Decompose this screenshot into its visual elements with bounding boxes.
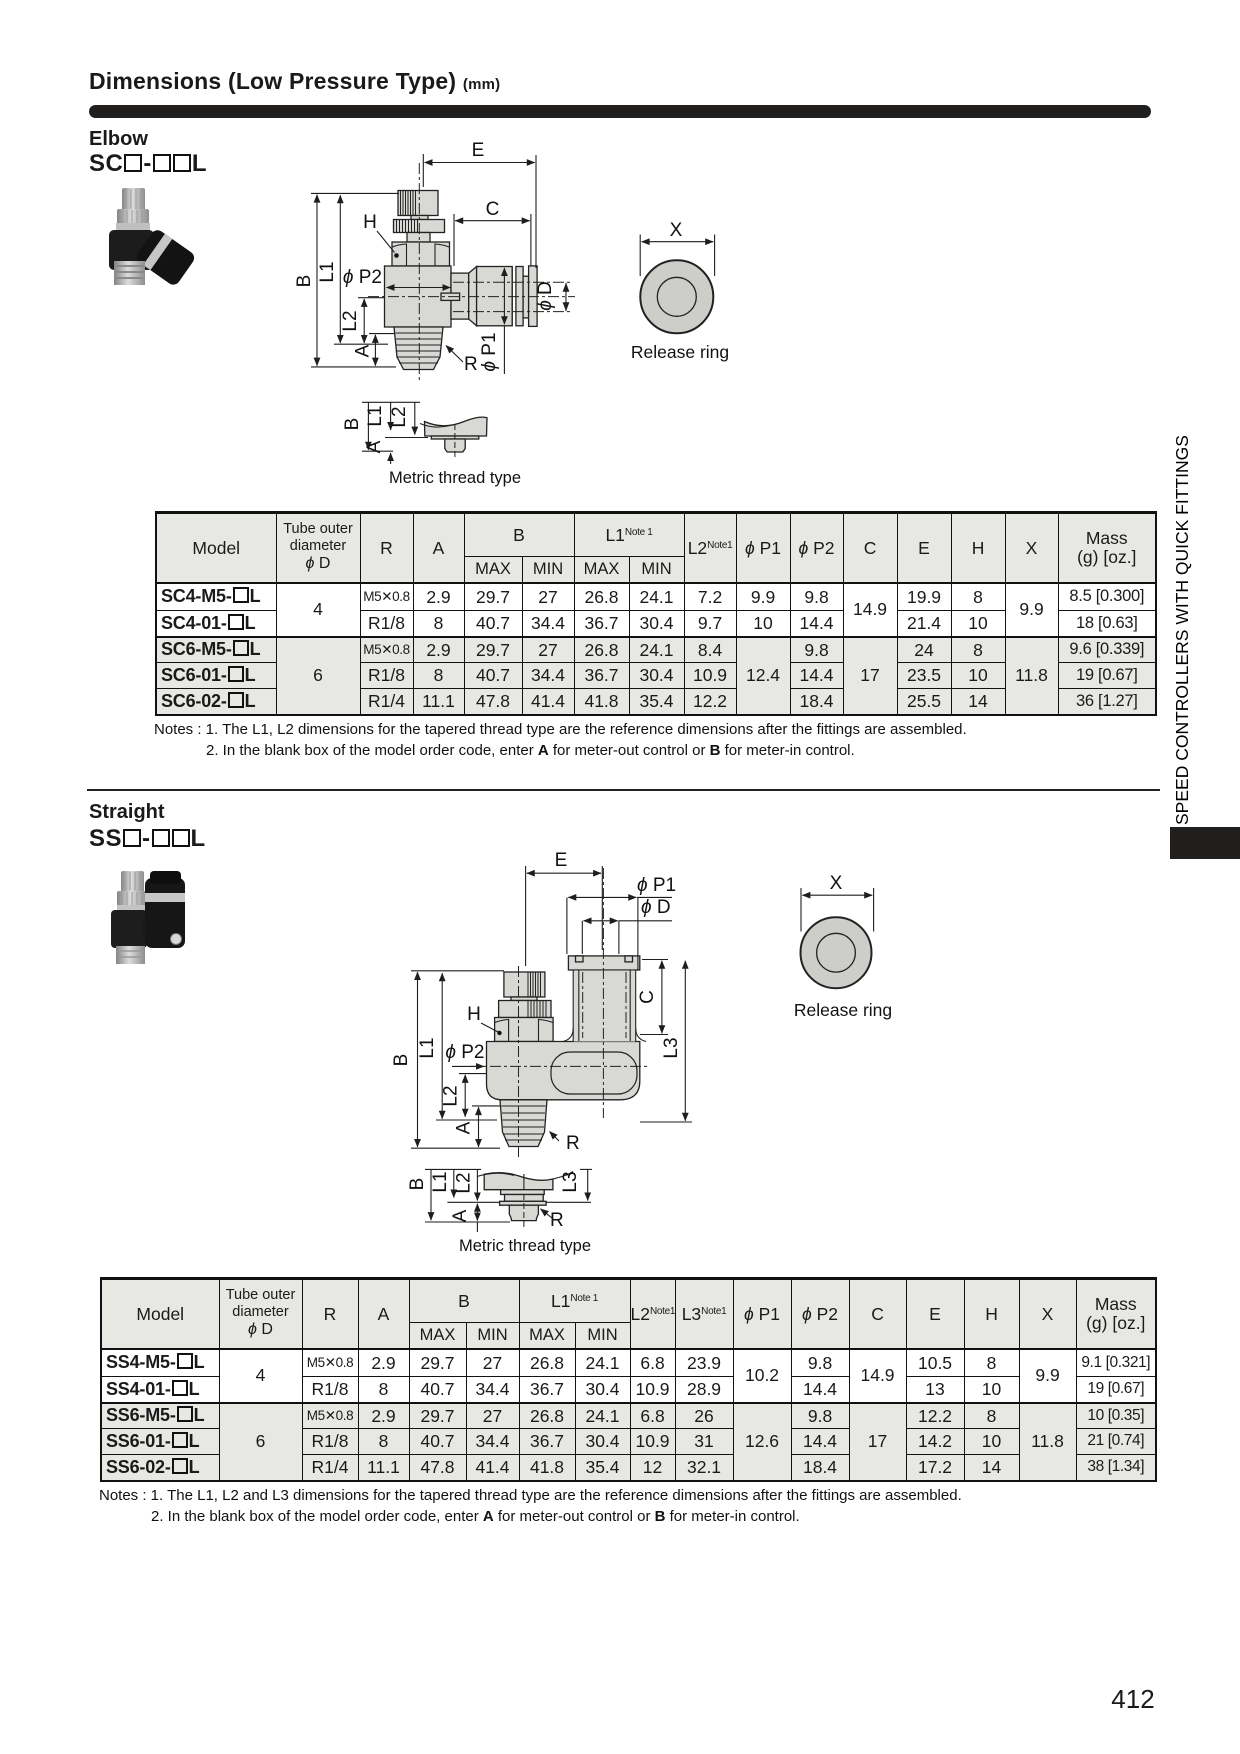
svg-text:H: H: [467, 1004, 481, 1025]
svg-text:Release ring: Release ring: [631, 342, 729, 362]
svg-text:A: A: [364, 440, 385, 453]
svg-text:A: A: [353, 344, 374, 357]
svg-text:R: R: [550, 1210, 564, 1231]
svg-text:L2: L2: [441, 1085, 462, 1106]
svg-text:L2: L2: [454, 1172, 475, 1193]
svg-text:B: B: [391, 1054, 412, 1067]
svg-text:ϕ D: ϕ D: [641, 897, 671, 918]
svg-text:E: E: [555, 850, 568, 871]
svg-text:A: A: [450, 1209, 471, 1222]
svg-text:L3: L3: [661, 1037, 682, 1058]
svg-text:L3: L3: [560, 1171, 581, 1192]
svg-text:L1: L1: [417, 1037, 438, 1058]
svg-text:ϕ P2: ϕ P2: [445, 1042, 484, 1063]
svg-text:L2: L2: [340, 310, 361, 331]
svg-text:A: A: [454, 1121, 475, 1134]
svg-text:R: R: [566, 1133, 580, 1154]
svg-text:X: X: [670, 220, 683, 241]
svg-text:ϕ P1: ϕ P1: [479, 332, 500, 371]
svg-text:L1: L1: [430, 1171, 451, 1192]
svg-text:E: E: [472, 140, 485, 161]
svg-text:L1: L1: [317, 261, 338, 282]
svg-text:C: C: [637, 990, 658, 1004]
svg-text:L2: L2: [389, 406, 410, 427]
svg-text:C: C: [486, 199, 500, 220]
svg-text:Release ring: Release ring: [794, 1000, 892, 1020]
svg-text:ϕ P2: ϕ P2: [343, 267, 382, 288]
svg-text:B: B: [407, 1178, 428, 1191]
svg-text:Metric thread type: Metric thread type: [389, 469, 521, 487]
svg-text:R: R: [464, 354, 478, 375]
svg-text:H: H: [363, 212, 377, 233]
svg-text:ϕ D: ϕ D: [535, 281, 556, 311]
svg-text:B: B: [294, 275, 315, 288]
svg-text:L1: L1: [365, 405, 386, 426]
svg-text:X: X: [830, 873, 843, 894]
svg-text:Metric thread type: Metric thread type: [459, 1237, 591, 1255]
svg-text:ϕ P1: ϕ P1: [637, 875, 676, 896]
svg-text:B: B: [342, 418, 363, 431]
